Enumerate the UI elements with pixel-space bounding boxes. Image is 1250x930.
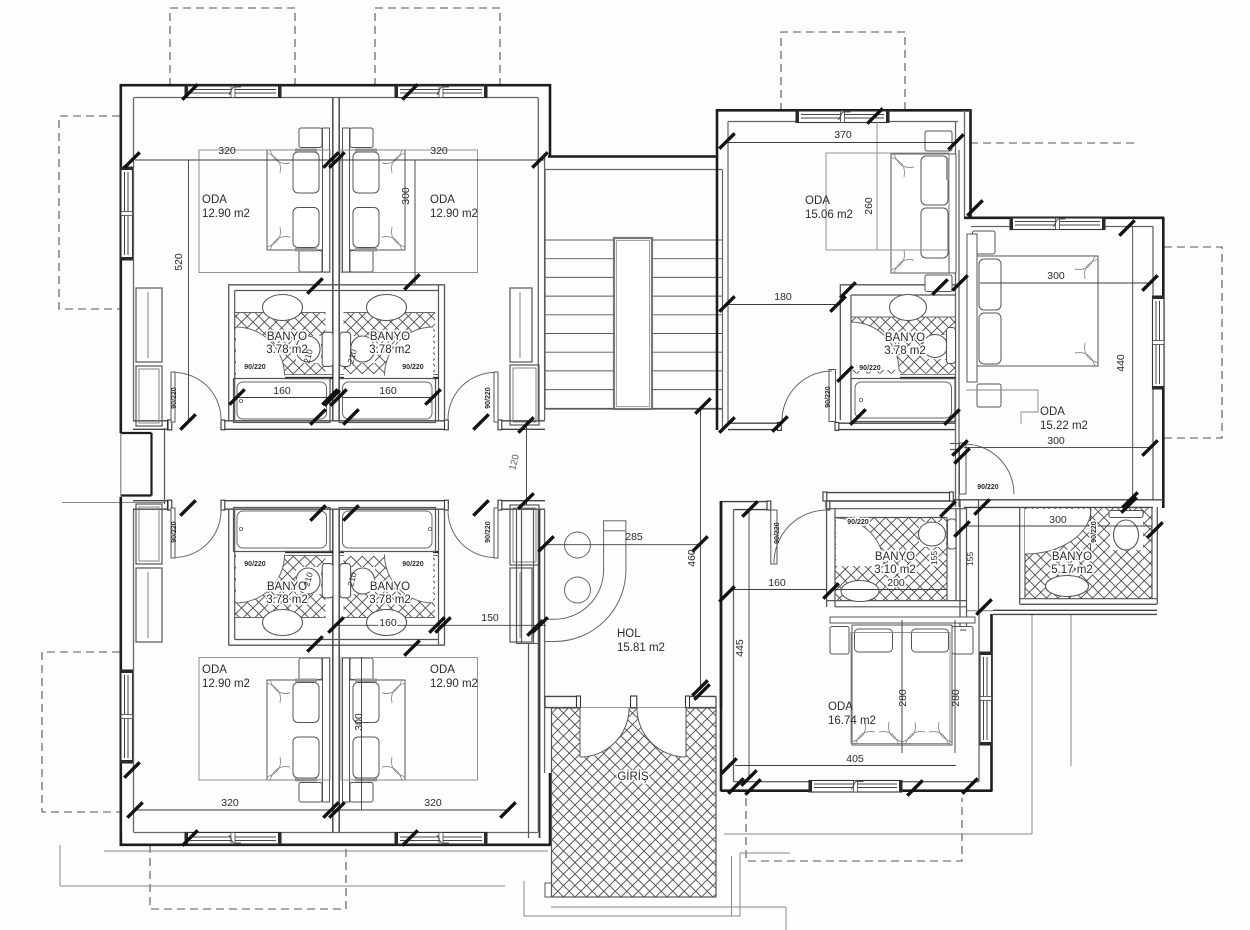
svg-text:ODA: ODA (202, 194, 227, 206)
svg-text:BANYO: BANYO (875, 551, 915, 563)
svg-text:320: 320 (218, 145, 236, 157)
svg-text:90/220: 90/220 (171, 521, 178, 543)
svg-text:300: 300 (353, 713, 365, 731)
svg-text:160: 160 (273, 385, 291, 397)
svg-text:5.17 m2: 5.17 m2 (1051, 564, 1093, 576)
svg-text:280: 280 (950, 689, 962, 707)
svg-text:ODA: ODA (430, 664, 455, 676)
svg-text:90/220: 90/220 (244, 561, 266, 568)
svg-text:90/220: 90/220 (825, 386, 832, 408)
svg-text:BANYO: BANYO (267, 331, 307, 343)
svg-text:BANYO: BANYO (885, 332, 925, 344)
svg-text:90/220: 90/220 (485, 521, 492, 543)
svg-text:445: 445 (734, 639, 746, 657)
svg-text:ODA: ODA (828, 701, 853, 713)
svg-text:150: 150 (481, 612, 499, 624)
svg-text:320: 320 (221, 797, 239, 809)
svg-text:460: 460 (686, 549, 698, 567)
svg-text:440: 440 (1115, 354, 1127, 372)
svg-text:90/220: 90/220 (244, 364, 266, 371)
svg-text:90/220: 90/220 (1091, 521, 1098, 543)
svg-text:15.81 m2: 15.81 m2 (617, 642, 665, 654)
svg-text:HOL: HOL (617, 628, 641, 640)
svg-text:3.78 m2: 3.78 m2 (266, 344, 308, 356)
svg-text:BANYO: BANYO (370, 331, 410, 343)
svg-text:90/220: 90/220 (847, 519, 869, 526)
svg-text:16.74 m2: 16.74 m2 (828, 715, 876, 727)
svg-text:90/220: 90/220 (977, 484, 999, 491)
svg-text:90/220: 90/220 (485, 387, 492, 409)
svg-text:3.78 m2: 3.78 m2 (369, 594, 411, 606)
svg-text:3.10 m2: 3.10 m2 (874, 564, 916, 576)
svg-text:155: 155 (965, 552, 975, 566)
svg-text:90/220: 90/220 (774, 522, 781, 544)
svg-text:ODA: ODA (1040, 406, 1065, 418)
svg-text:GİRİŞ: GİRİŞ (617, 770, 649, 783)
svg-text:90/220: 90/220 (859, 365, 881, 372)
svg-text:15.22 m2: 15.22 m2 (1040, 420, 1088, 432)
svg-text:90/220: 90/220 (171, 387, 178, 409)
svg-text:370: 370 (834, 129, 852, 141)
svg-text:15.06 m2: 15.06 m2 (805, 209, 853, 221)
svg-text:BANYO: BANYO (370, 581, 410, 593)
svg-text:300: 300 (1049, 514, 1067, 526)
svg-text:180: 180 (774, 291, 792, 303)
svg-text:300: 300 (400, 187, 412, 205)
svg-text:160: 160 (768, 577, 786, 589)
svg-text:12.90 m2: 12.90 m2 (202, 208, 250, 220)
svg-text:12.90 m2: 12.90 m2 (430, 678, 478, 690)
svg-text:3.78 m2: 3.78 m2 (884, 345, 926, 357)
svg-text:260: 260 (863, 197, 875, 215)
svg-text:320: 320 (424, 797, 442, 809)
svg-text:155: 155 (929, 551, 939, 565)
svg-text:405: 405 (846, 753, 864, 765)
svg-text:12.90 m2: 12.90 m2 (430, 208, 478, 220)
svg-text:200: 200 (887, 577, 905, 589)
svg-text:285: 285 (625, 531, 643, 543)
svg-text:90/220: 90/220 (402, 364, 424, 371)
svg-text:520: 520 (173, 253, 185, 271)
svg-text:ODA: ODA (202, 664, 227, 676)
svg-text:3.78 m2: 3.78 m2 (369, 344, 411, 356)
svg-text:3.78 m2: 3.78 m2 (266, 594, 308, 606)
svg-text:12.90 m2: 12.90 m2 (202, 678, 250, 690)
svg-text:BANYO: BANYO (1052, 551, 1092, 563)
svg-text:160: 160 (379, 617, 397, 629)
svg-text:160: 160 (379, 385, 397, 397)
svg-text:300: 300 (1047, 435, 1065, 447)
svg-text:320: 320 (430, 145, 448, 157)
svg-text:300: 300 (1047, 270, 1065, 282)
svg-text:ODA: ODA (430, 194, 455, 206)
svg-text:90/220: 90/220 (402, 561, 424, 568)
svg-text:ODA: ODA (805, 195, 830, 207)
svg-text:280: 280 (897, 689, 909, 707)
